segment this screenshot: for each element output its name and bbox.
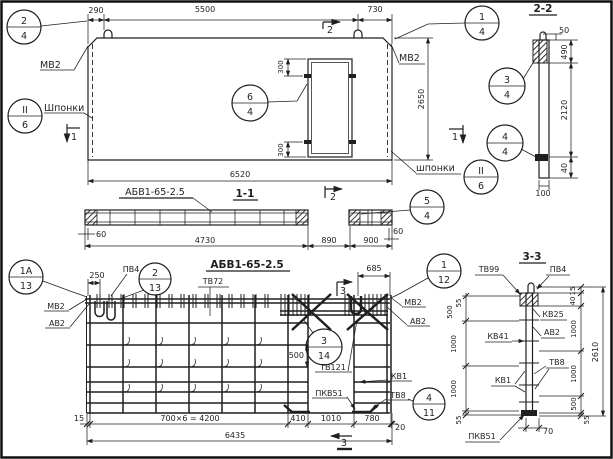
svg-text:2: 2 xyxy=(152,268,158,279)
hinge-mark xyxy=(304,140,311,144)
svg-text:II: II xyxy=(22,105,28,116)
svg-text:3: 3 xyxy=(321,336,327,347)
svg-text:2: 2 xyxy=(330,192,336,203)
label-kv1: КВ1 xyxy=(391,372,407,381)
opening-dims: 300 300 xyxy=(277,59,306,157)
hinge-mark xyxy=(349,74,356,78)
balloon-2-4: 2 4 xyxy=(7,10,87,44)
dim-290: 290 xyxy=(88,6,103,15)
balloon-II-6-right: II 6 xyxy=(464,160,498,194)
balloon-4-4: 4 4 xyxy=(487,125,536,161)
dim-5500: 5500 xyxy=(195,5,215,14)
svg-text:4: 4 xyxy=(479,27,485,38)
svg-text:1000: 1000 xyxy=(450,380,458,398)
dim-490: 490 xyxy=(560,44,569,59)
label-tv121: ТВ121 xyxy=(319,363,346,372)
label-shponki-left: Шпонки xyxy=(44,103,84,114)
label-pkv51: ПКВ51 xyxy=(468,432,495,441)
dim-60-left: 60 xyxy=(96,230,106,239)
label-tv8: ТВ8 xyxy=(548,358,564,367)
balloon-1a-13: 1А 13 xyxy=(9,260,87,297)
label-pkv51: ПКВ51 xyxy=(315,389,342,398)
svg-text:12: 12 xyxy=(438,275,450,286)
svg-text:3: 3 xyxy=(341,438,347,449)
hinge-mark xyxy=(304,74,311,78)
dim-780: 780 xyxy=(364,414,379,423)
label-mv2-right: МВ2 xyxy=(399,53,420,64)
dim-15: 15 xyxy=(74,414,84,423)
section-flag-2-top: 2 xyxy=(323,22,340,36)
svg-text:40: 40 xyxy=(569,297,577,306)
section-flag-1-right: 1 xyxy=(449,125,463,143)
svg-text:14: 14 xyxy=(318,351,330,362)
label-kv1: КВ1 xyxy=(495,376,511,385)
section-2-2-title: 2-2 xyxy=(534,3,553,15)
label-kv25: КВ25 xyxy=(542,310,563,319)
blueprint-sheet: 290 5500 730 6520 2650 300 300 МВ2 Шпонк… xyxy=(0,0,613,459)
svg-text:13: 13 xyxy=(20,281,32,292)
dim-60-right: 60 xyxy=(393,227,403,236)
svg-text:6: 6 xyxy=(247,92,253,103)
mark-abv: АБВ1-65-2.5 xyxy=(125,187,185,198)
plan-bottom-dims: 15 700×6 = 4200 410 1010 780 20 6435 xyxy=(74,413,405,445)
dim-410: 410 xyxy=(290,414,305,423)
svg-text:2: 2 xyxy=(327,25,333,36)
label-av2: АВ2 xyxy=(544,328,560,337)
svg-text:3: 3 xyxy=(340,286,346,297)
section-3-3-left-dims: 55 500 1000 1000 55 xyxy=(446,293,521,424)
section-flag-2-bottom: 2 xyxy=(325,186,342,203)
svg-text:4: 4 xyxy=(504,90,510,101)
section-1-1-dims: 60 4730 890 900 60 xyxy=(78,226,403,250)
lifting-loop-right xyxy=(354,30,362,38)
label-tv72: ТВ72 xyxy=(202,277,224,286)
balloon-3-14: 3 14 xyxy=(303,319,342,365)
dim-250: 250 xyxy=(89,271,104,280)
svg-text:5: 5 xyxy=(424,196,430,207)
panel-outline xyxy=(88,38,392,160)
label-kv41: КВ41 xyxy=(487,332,508,341)
svg-text:1: 1 xyxy=(441,260,447,271)
embed-plate-bottom xyxy=(535,154,548,161)
balloon-4-11: 4 11 xyxy=(408,388,445,420)
section-3-3-title: 3-3 xyxy=(523,251,542,263)
dim-2610: 2610 xyxy=(591,342,600,362)
hinge-mark xyxy=(349,140,356,144)
svg-text:6: 6 xyxy=(22,120,28,131)
embed-plate-top xyxy=(520,293,538,306)
pkv51-angle xyxy=(352,405,378,412)
label-mv2-right: МВ2 xyxy=(404,298,421,307)
svg-text:4: 4 xyxy=(21,31,27,42)
svg-text:4: 4 xyxy=(502,132,508,143)
section-2-2-view: 2-2 50 490 2120 40 100 3 4 4 4 xyxy=(487,3,578,198)
dim-100: 100 xyxy=(535,189,550,198)
svg-text:15: 15 xyxy=(569,287,577,296)
door-opening xyxy=(304,59,356,157)
balloon-1-4: 1 4 xyxy=(395,6,499,40)
dim-6435: 6435 xyxy=(225,431,245,440)
reinforcement-plan-view: АБВ1-65-2.5 250 685 500 ПВ4 ТВ72 МВ2 АВ2… xyxy=(9,254,461,449)
svg-text:4: 4 xyxy=(424,211,430,222)
svg-text:55: 55 xyxy=(455,416,463,425)
beam-left-piece xyxy=(85,210,308,225)
loop-top xyxy=(540,32,546,40)
lifting-loop-left xyxy=(104,30,112,38)
label-av2-left: АВ2 xyxy=(49,319,65,328)
panel-elevation-view: 290 5500 730 6520 2650 300 300 МВ2 Шпонк… xyxy=(7,5,499,203)
section-flag-1-left: 1 xyxy=(67,124,80,143)
plan-title: АБВ1-65-2.5 xyxy=(210,259,283,271)
svg-text:13: 13 xyxy=(149,283,161,294)
svg-text:1А: 1А xyxy=(20,266,33,277)
pv4-hook xyxy=(107,301,115,320)
cross-bar-ticks xyxy=(519,320,539,402)
label-tv8: ТВ8 xyxy=(389,391,405,400)
dim-900: 900 xyxy=(363,236,378,245)
pv4-hook-top xyxy=(528,283,534,293)
section-1-1-title: 1-1 xyxy=(236,188,255,200)
label-mv2-left: МВ2 xyxy=(47,302,64,311)
dim-2650: 2650 xyxy=(417,89,426,109)
label-pv4: ПВ4 xyxy=(123,265,140,274)
section-flag-3-top: 3 xyxy=(337,282,352,297)
svg-text:3: 3 xyxy=(504,75,510,86)
balloon-II-6-left: II 6 xyxy=(8,99,42,133)
balloon-6-4: 6 4 xyxy=(232,84,307,121)
dim-730: 730 xyxy=(367,5,382,14)
balloon-3-4: 3 4 xyxy=(489,58,536,104)
svg-text:1000: 1000 xyxy=(570,320,578,338)
svg-text:1: 1 xyxy=(479,12,485,23)
dim-2120: 2120 xyxy=(560,100,569,120)
label-shponki-right: шпонки xyxy=(416,163,455,174)
dim-700x6: 700×6 = 4200 xyxy=(160,414,219,423)
dim-300-bottom: 300 xyxy=(277,143,285,156)
svg-text:1000: 1000 xyxy=(570,365,578,383)
mesh-columns xyxy=(90,295,391,413)
section-flag-3-bottom: 3 xyxy=(331,436,352,449)
label-mv2-left: МВ2 xyxy=(40,60,61,71)
svg-text:1: 1 xyxy=(71,132,77,143)
section-3-3-right-dims: 15 40 1000 1000 500 55 2610 xyxy=(536,284,606,424)
edge-bar xyxy=(526,293,533,415)
svg-text:55: 55 xyxy=(583,416,591,425)
label-pv4: ПВ4 xyxy=(550,265,567,274)
drawing-canvas: 290 5500 730 6520 2650 300 300 МВ2 Шпонк… xyxy=(0,0,613,459)
dim-70: 70 xyxy=(543,427,553,436)
dim-300-top: 300 xyxy=(277,60,285,73)
svg-text:4: 4 xyxy=(426,393,432,404)
bottom-dim-6520: 6520 xyxy=(88,160,392,185)
svg-text:500: 500 xyxy=(570,397,578,410)
dim-50: 50 xyxy=(559,26,569,35)
svg-text:2: 2 xyxy=(21,16,27,27)
balloon-1-12: 1 12 xyxy=(391,254,461,298)
dim-20: 20 xyxy=(395,423,405,432)
dim-500: 500 xyxy=(289,351,304,360)
svg-text:1000: 1000 xyxy=(450,335,458,353)
dim-1010: 1010 xyxy=(321,414,341,423)
svg-text:1: 1 xyxy=(452,132,458,143)
label-tv99: ТВ99 xyxy=(478,265,500,274)
svg-text:6: 6 xyxy=(478,181,484,192)
dim-6520: 6520 xyxy=(230,170,250,179)
svg-text:500: 500 xyxy=(446,305,454,318)
dim-40: 40 xyxy=(560,163,569,173)
svg-text:11: 11 xyxy=(423,408,435,419)
section-3-3-view: 3-3 ТВ99 ПВ4 КВ25 АВ2 КВ41 ТВ8 КВ1 ПКВ51… xyxy=(446,251,606,442)
section-1-1-view: АБВ1-65-2.5 1-1 60 4730 890 900 60 5 4 xyxy=(78,187,444,250)
svg-text:4: 4 xyxy=(247,107,253,118)
balloon-5-4: 5 4 xyxy=(361,190,444,224)
svg-text:4: 4 xyxy=(502,147,508,158)
label-av2-right: АВ2 xyxy=(410,317,426,326)
svg-text:II: II xyxy=(478,166,484,177)
dim-890: 890 xyxy=(321,236,336,245)
svg-text:55: 55 xyxy=(455,299,463,308)
dim-685: 685 xyxy=(366,264,381,273)
dim-4730: 4730 xyxy=(195,236,215,245)
